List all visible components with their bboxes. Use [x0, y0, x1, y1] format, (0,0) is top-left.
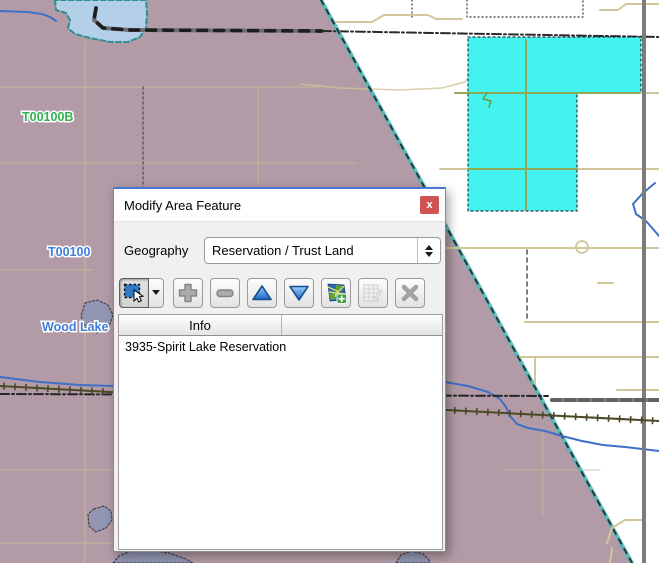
spinner-icon[interactable] — [417, 238, 440, 263]
spinner-down-icon[interactable] — [425, 252, 433, 257]
triangle-up-icon — [251, 283, 273, 303]
chevron-down-icon — [152, 290, 160, 295]
info-table[interactable]: Info 3935-Spirit Lake Reservation — [118, 314, 443, 550]
table-edit-icon — [362, 282, 384, 304]
dialog-title: Modify Area Feature — [124, 198, 241, 213]
select-tool-dropdown[interactable] — [149, 278, 164, 308]
map-label-t00100b: T00100B — [22, 110, 73, 124]
close-button[interactable]: x — [420, 196, 439, 214]
triangle-down-icon — [288, 283, 310, 303]
table-row[interactable]: 3935-Spirit Lake Reservation — [119, 336, 442, 354]
geography-label: Geography — [124, 243, 194, 258]
map-icon — [325, 282, 347, 304]
move-up-button[interactable] — [247, 278, 277, 308]
add-button[interactable] — [173, 278, 203, 308]
geography-row: Geography Reservation / Trust Land — [124, 237, 445, 264]
geography-value: Reservation / Trust Land — [212, 243, 354, 258]
dialog-toolbar — [119, 277, 445, 308]
close-icon: x — [426, 200, 432, 211]
modify-area-feature-dialog: Modify Area Feature x Geography Reservat… — [113, 187, 446, 552]
dialog-titlebar[interactable]: Modify Area Feature x — [114, 189, 445, 222]
spinner-up-icon[interactable] — [425, 245, 433, 250]
empty-column-header — [282, 315, 442, 335]
select-tool-button[interactable] — [119, 278, 149, 308]
move-down-button[interactable] — [284, 278, 314, 308]
info-table-body: 3935-Spirit Lake Reservation — [119, 336, 442, 354]
clear-button[interactable] — [395, 278, 425, 308]
selection-arrow-icon — [123, 283, 145, 303]
plus-icon — [177, 282, 199, 304]
attribute-table-button[interactable] — [358, 278, 388, 308]
map-label-wood-lake: Wood Lake — [42, 320, 108, 334]
remove-button[interactable] — [210, 278, 240, 308]
x-icon — [399, 282, 421, 304]
map-label-t00100: T00100 — [48, 245, 90, 259]
info-column-header[interactable]: Info — [119, 315, 282, 335]
minus-icon — [214, 282, 236, 304]
map-view-button[interactable] — [321, 278, 351, 308]
info-table-header: Info — [119, 315, 442, 336]
geography-select[interactable]: Reservation / Trust Land — [204, 237, 441, 264]
